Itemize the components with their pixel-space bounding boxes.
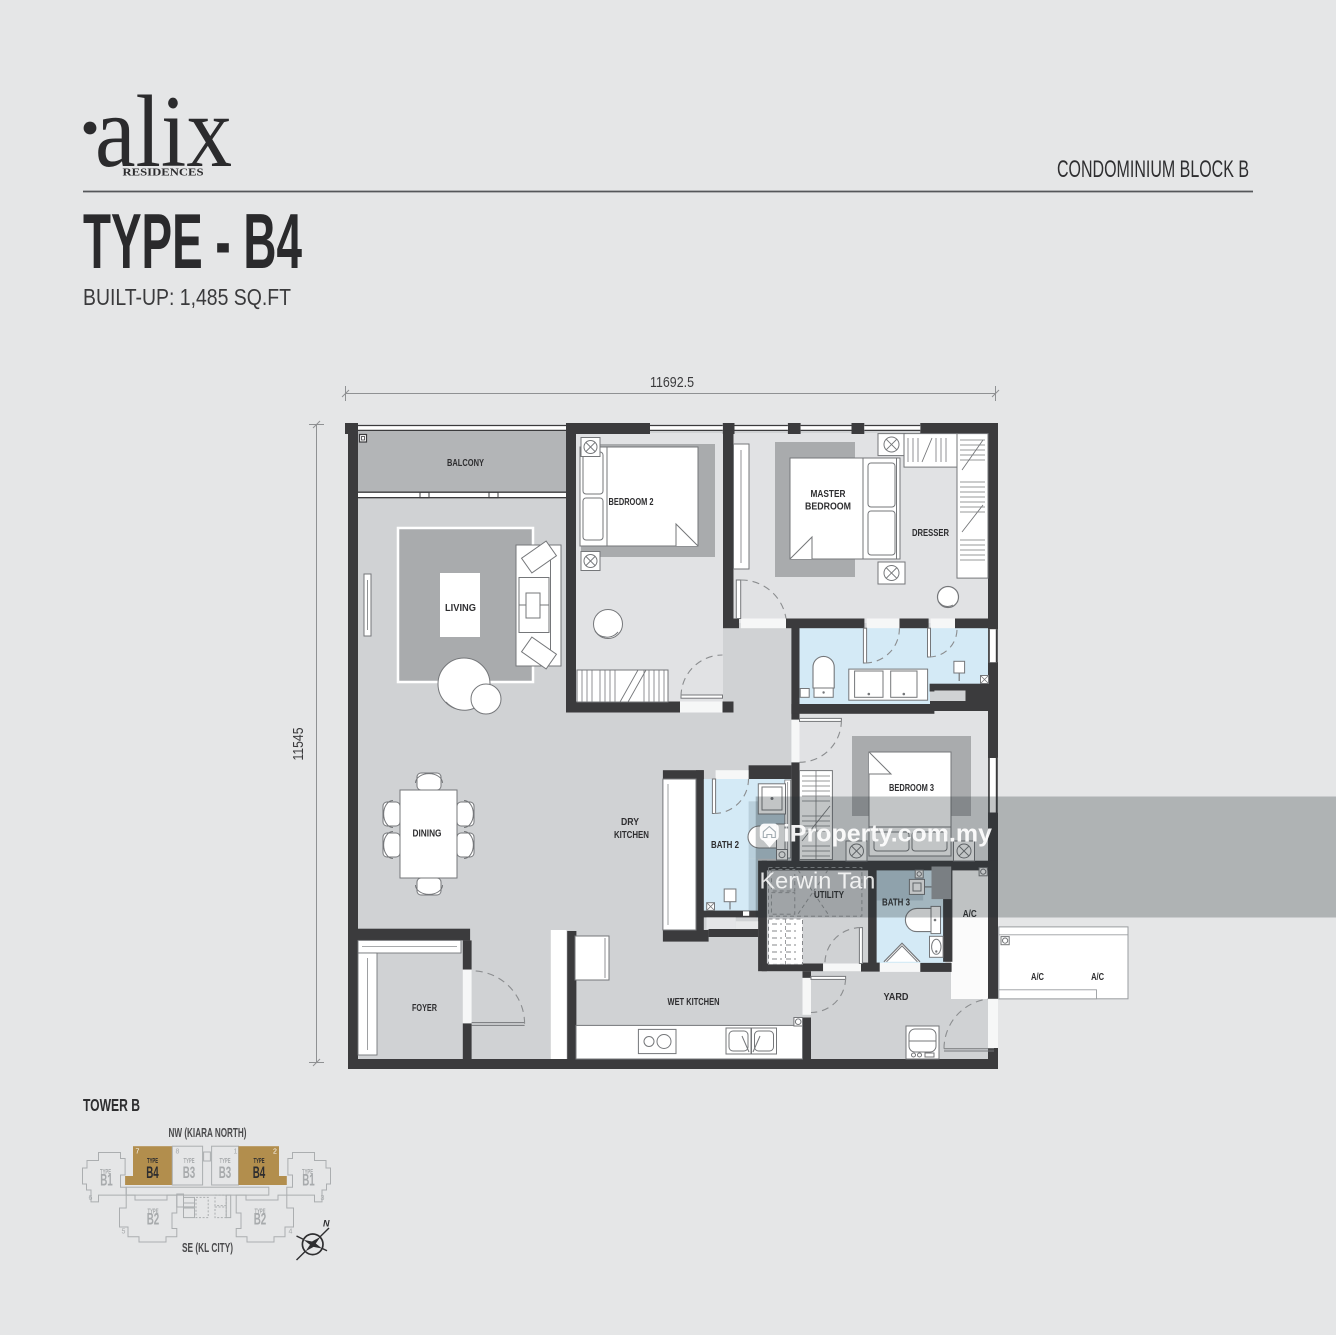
svg-text:8: 8 — [176, 1149, 180, 1156]
svg-text:TOWER B: TOWER B — [83, 1095, 140, 1115]
svg-text:2: 2 — [273, 1149, 277, 1156]
svg-text:WET KITCHEN: WET KITCHEN — [668, 997, 720, 1008]
svg-text:7: 7 — [136, 1149, 140, 1156]
svg-text:NW (KIARA NORTH): NW (KIARA NORTH) — [169, 1126, 247, 1140]
svg-text:11692.5: 11692.5 — [650, 374, 694, 391]
svg-text:Kerwin Tan: Kerwin Tan — [760, 868, 876, 894]
svg-text:YARD: YARD — [884, 992, 909, 1003]
svg-text:BUILT-UP: 1,485 SQ.FT: BUILT-UP: 1,485 SQ.FT — [83, 284, 291, 310]
svg-text:6: 6 — [89, 1195, 93, 1202]
svg-text:CONDOMINIUM BLOCK B: CONDOMINIUM BLOCK B — [1057, 156, 1249, 183]
svg-text:N: N — [323, 1219, 330, 1229]
svg-text:KITCHEN: KITCHEN — [614, 830, 649, 841]
svg-text:B2: B2 — [254, 1210, 267, 1229]
svg-text:SE (KL CITY): SE (KL CITY) — [182, 1241, 233, 1255]
svg-text:B1: B1 — [100, 1171, 113, 1190]
svg-text:iProperty.com.my: iProperty.com.my — [783, 821, 992, 848]
svg-text:DRESSER: DRESSER — [912, 528, 950, 539]
svg-text:TYPE - B4: TYPE - B4 — [83, 197, 302, 285]
svg-text:B4: B4 — [253, 1163, 266, 1182]
svg-text:4: 4 — [289, 1229, 293, 1236]
svg-text:1: 1 — [234, 1149, 238, 1156]
svg-text:RESIDENCES: RESIDENCES — [123, 168, 204, 179]
svg-text:5: 5 — [122, 1229, 126, 1236]
svg-text:A/C: A/C — [1091, 972, 1104, 983]
svg-text:FOYER: FOYER — [412, 1003, 438, 1014]
svg-text:BEDROOM 2: BEDROOM 2 — [609, 497, 654, 508]
svg-text:LIVING: LIVING — [445, 603, 476, 614]
svg-text:DRY: DRY — [621, 817, 639, 828]
svg-text:B3: B3 — [219, 1163, 232, 1182]
svg-text:BATH 2: BATH 2 — [711, 840, 739, 851]
svg-text:BALCONY: BALCONY — [447, 458, 484, 469]
svg-text:BEDROOM: BEDROOM — [805, 502, 851, 513]
svg-text:BEDROOM 3: BEDROOM 3 — [889, 783, 934, 794]
svg-text:11545: 11545 — [290, 728, 307, 761]
svg-text:MASTER: MASTER — [811, 489, 847, 500]
svg-text:B2: B2 — [147, 1210, 160, 1229]
svg-text:3: 3 — [321, 1195, 325, 1202]
svg-text:B1: B1 — [302, 1171, 315, 1190]
svg-text:B4: B4 — [146, 1163, 159, 1182]
svg-text:B3: B3 — [183, 1163, 196, 1182]
svg-text:A/C: A/C — [1031, 972, 1044, 983]
svg-text:DINING: DINING — [413, 829, 442, 840]
